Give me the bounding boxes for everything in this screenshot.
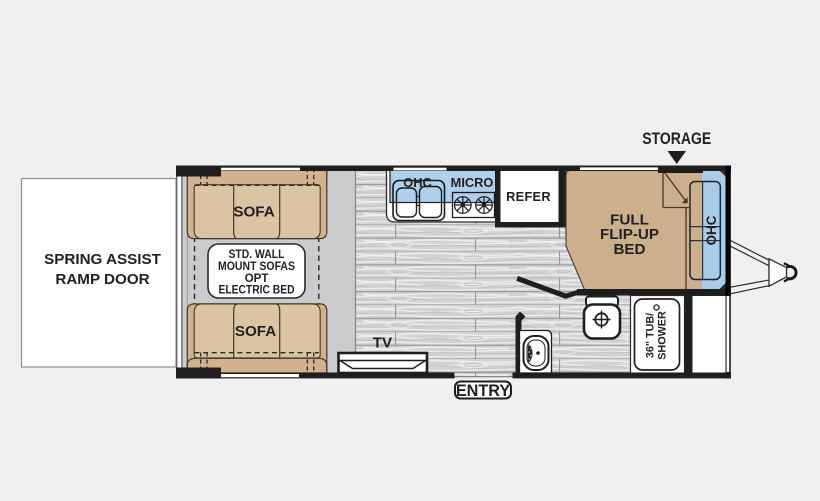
- svg-text:ELECTRIC BED: ELECTRIC BED: [219, 284, 295, 297]
- svg-text:OHC: OHC: [403, 175, 431, 190]
- svg-text:REFER: REFER: [506, 189, 551, 204]
- svg-text:STORAGE: STORAGE: [642, 129, 711, 148]
- svg-text:SOFA: SOFA: [235, 323, 276, 340]
- svg-text:SHOWER: SHOWER: [656, 311, 668, 360]
- svg-text:36" TUB/: 36" TUB/: [644, 313, 656, 358]
- svg-text:RAMP DOOR: RAMP DOOR: [55, 271, 149, 288]
- svg-text:TV: TV: [373, 335, 393, 352]
- svg-text:MICRO: MICRO: [451, 175, 494, 190]
- svg-text:SOFA: SOFA: [233, 204, 274, 221]
- svg-text:OHC: OHC: [704, 215, 719, 245]
- svg-text:SPRING ASSIST: SPRING ASSIST: [44, 251, 161, 268]
- svg-text:ENTRY: ENTRY: [456, 382, 510, 400]
- svg-text:BED: BED: [613, 241, 645, 258]
